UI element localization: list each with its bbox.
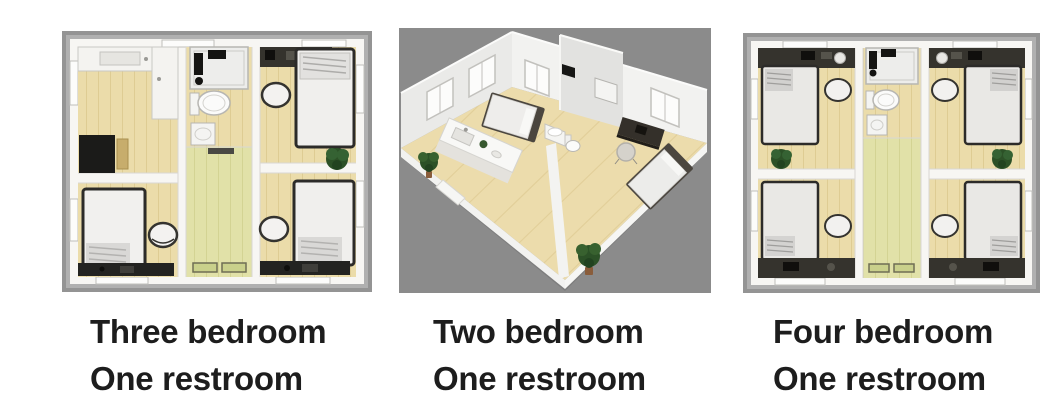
bed — [296, 49, 354, 147]
two-bedroom-floor-plan-image — [399, 28, 711, 293]
three-bedroom-floor-plan-image — [62, 31, 372, 292]
bed — [294, 181, 354, 265]
bed — [762, 182, 818, 260]
toilet-icon — [866, 90, 899, 110]
shower — [866, 48, 918, 84]
cabinet — [79, 135, 115, 173]
caption-line: One restroom — [433, 355, 646, 402]
bed — [965, 66, 1021, 144]
desk — [929, 258, 1025, 278]
caption-four-bedroom: Four bedroom One restroom — [773, 308, 993, 402]
desk — [78, 263, 174, 276]
caption-line: Four bedroom — [773, 308, 993, 355]
sink — [191, 123, 215, 145]
caption-two-bedroom: Two bedroom One restroom — [433, 308, 646, 402]
caption-three-bedroom: Three bedroom One restroom — [90, 308, 326, 402]
shower — [190, 47, 248, 89]
bed — [965, 182, 1021, 260]
chair — [825, 215, 851, 237]
floor-plan-composite: Three bedroom One restroom Two bedroom O… — [0, 0, 1058, 413]
panel-four-bedroom — [743, 33, 1040, 293]
toilet-icon — [190, 91, 230, 115]
sink — [867, 115, 887, 135]
shelf — [117, 139, 128, 169]
desk — [260, 261, 350, 275]
desk — [758, 258, 855, 278]
chair — [932, 79, 958, 101]
four-bedroom-floor-plan-image — [743, 33, 1040, 293]
chair — [262, 83, 290, 107]
hallway-floor — [863, 138, 921, 278]
caption-line: Two bedroom — [433, 308, 646, 355]
chair — [260, 217, 288, 241]
hallway-floor — [186, 147, 252, 277]
panel-two-bedroom — [399, 28, 711, 293]
door — [208, 148, 234, 154]
caption-line: One restroom — [773, 355, 993, 402]
bed — [83, 189, 145, 269]
chair — [149, 223, 177, 247]
caption-line: One restroom — [90, 355, 326, 402]
panel-three-bedroom — [62, 31, 372, 292]
chair — [825, 79, 851, 101]
caption-line: Three bedroom — [90, 308, 326, 355]
chair — [932, 215, 958, 237]
bed — [762, 66, 818, 144]
